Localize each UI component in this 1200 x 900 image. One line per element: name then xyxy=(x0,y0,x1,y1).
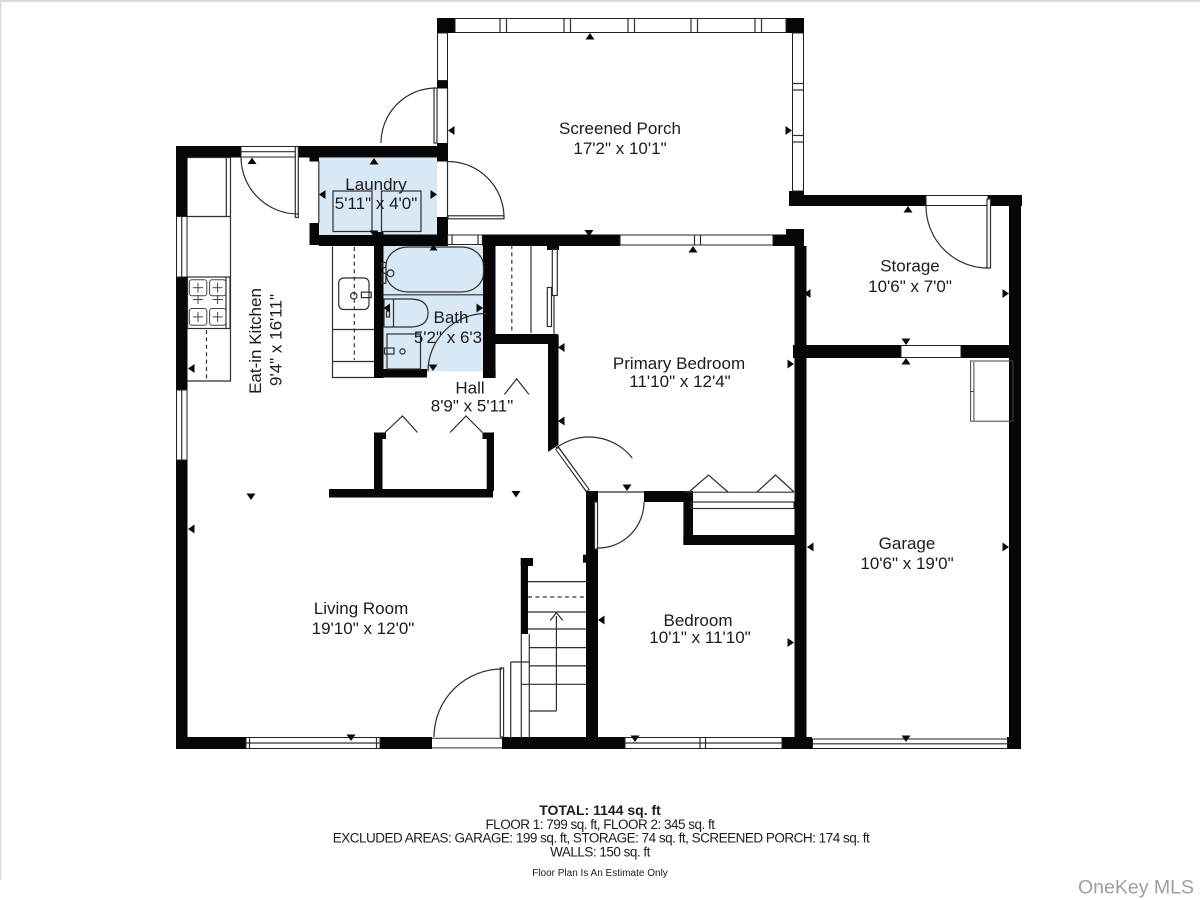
svg-text:Bath: Bath xyxy=(434,308,469,327)
svg-text:11'10" x 12'4": 11'10" x 12'4" xyxy=(629,372,730,391)
svg-text:10'6" x 7'0": 10'6" x 7'0" xyxy=(868,277,952,296)
svg-text:5'2" x 6'3: 5'2" x 6'3 xyxy=(414,328,482,347)
svg-text:Garage: Garage xyxy=(879,534,936,553)
svg-text:Laundry: Laundry xyxy=(345,175,407,194)
svg-text:Eat-in Kitchen: Eat-in Kitchen xyxy=(246,288,265,394)
svg-text:19'10" x 12'0": 19'10" x 12'0" xyxy=(312,619,415,638)
svg-text:Screened Porch: Screened Porch xyxy=(559,119,681,138)
svg-text:WALLS: 150 sq. ft: WALLS: 150 sq. ft xyxy=(550,845,651,860)
svg-text:5'11" x 4'0": 5'11" x 4'0" xyxy=(335,194,418,213)
svg-text:17'2" x 10'1": 17'2" x 10'1" xyxy=(573,139,666,158)
svg-text:OneKey MLS: OneKey MLS xyxy=(1078,877,1194,899)
svg-text:Living Room: Living Room xyxy=(314,599,409,618)
svg-text:10'1" x 11'10": 10'1" x 11'10" xyxy=(649,628,750,647)
svg-text:EXCLUDED AREAS: GARAGE: 199 sq: EXCLUDED AREAS: GARAGE: 199 sq. ft, STOR… xyxy=(333,831,870,846)
svg-text:Storage: Storage xyxy=(880,257,940,276)
svg-text:8'9" x 5'11": 8'9" x 5'11" xyxy=(431,397,514,416)
svg-text:TOTAL: 1144 sq. ft: TOTAL: 1144 sq. ft xyxy=(539,802,661,818)
svg-text:10'6" x 19'0": 10'6" x 19'0" xyxy=(860,554,953,573)
svg-text:9'4" x 16'11": 9'4" x 16'11" xyxy=(267,294,286,386)
svg-text:Hall: Hall xyxy=(455,379,484,398)
svg-text:Floor Plan Is An Estimate Only: Floor Plan Is An Estimate Only xyxy=(532,868,668,879)
svg-text:Primary Bedroom: Primary Bedroom xyxy=(613,354,745,373)
